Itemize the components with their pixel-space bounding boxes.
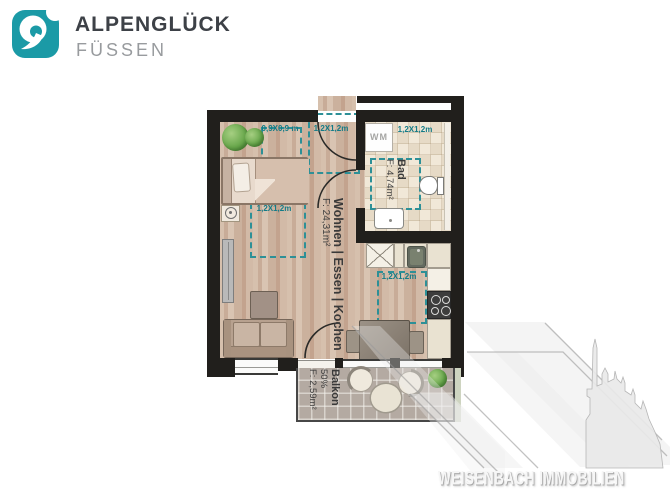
castle-watermark-icon bbox=[586, 339, 663, 468]
weisenbach-watermark-logo bbox=[0, 0, 670, 503]
floorplan-page: ALPENGLÜCK FÜSSEN WM bbox=[0, 0, 670, 503]
watermark-text: WEISENBACH IMMOBILIEN bbox=[438, 467, 625, 490]
